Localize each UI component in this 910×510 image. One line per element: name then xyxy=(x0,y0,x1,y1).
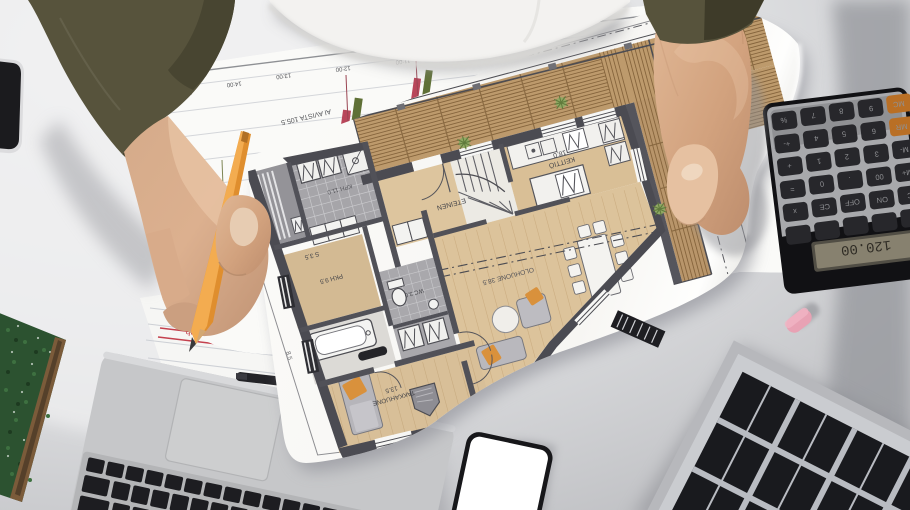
svg-text:MR: MR xyxy=(895,122,908,132)
svg-text:00: 00 xyxy=(875,172,884,182)
svg-text:MC: MC xyxy=(892,99,905,109)
svg-text:OFF: OFF xyxy=(844,197,860,208)
svg-text:CE: CE xyxy=(819,202,830,212)
svg-text:ON: ON xyxy=(876,195,888,205)
svg-text:M-: M- xyxy=(899,145,909,155)
